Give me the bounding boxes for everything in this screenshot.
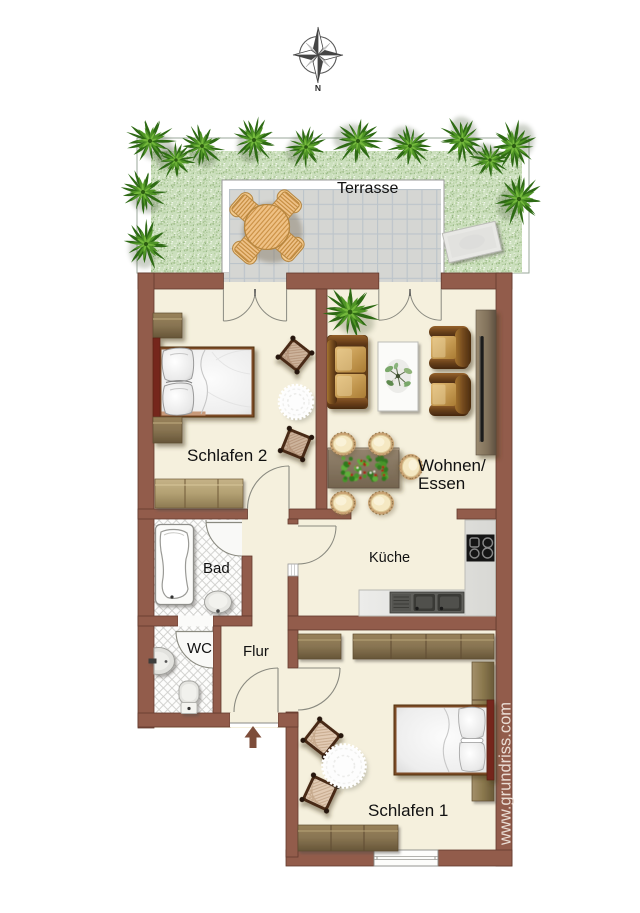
svg-text:N: N [315,83,321,93]
svg-text:Küche: Küche [369,550,410,566]
svg-text:Schlafen 2: Schlafen 2 [187,446,267,465]
svg-text:WC: WC [187,640,212,657]
svg-text:Bad: Bad [203,560,230,577]
svg-text:Terrasse: Terrasse [337,180,398,197]
svg-text:Flur: Flur [243,643,269,660]
svg-text:Essen: Essen [418,474,465,493]
svg-text:www.grundriss.com: www.grundriss.com [497,702,515,846]
svg-text:Schlafen 1: Schlafen 1 [368,801,448,820]
svg-text:Wohnen/: Wohnen/ [418,456,486,475]
